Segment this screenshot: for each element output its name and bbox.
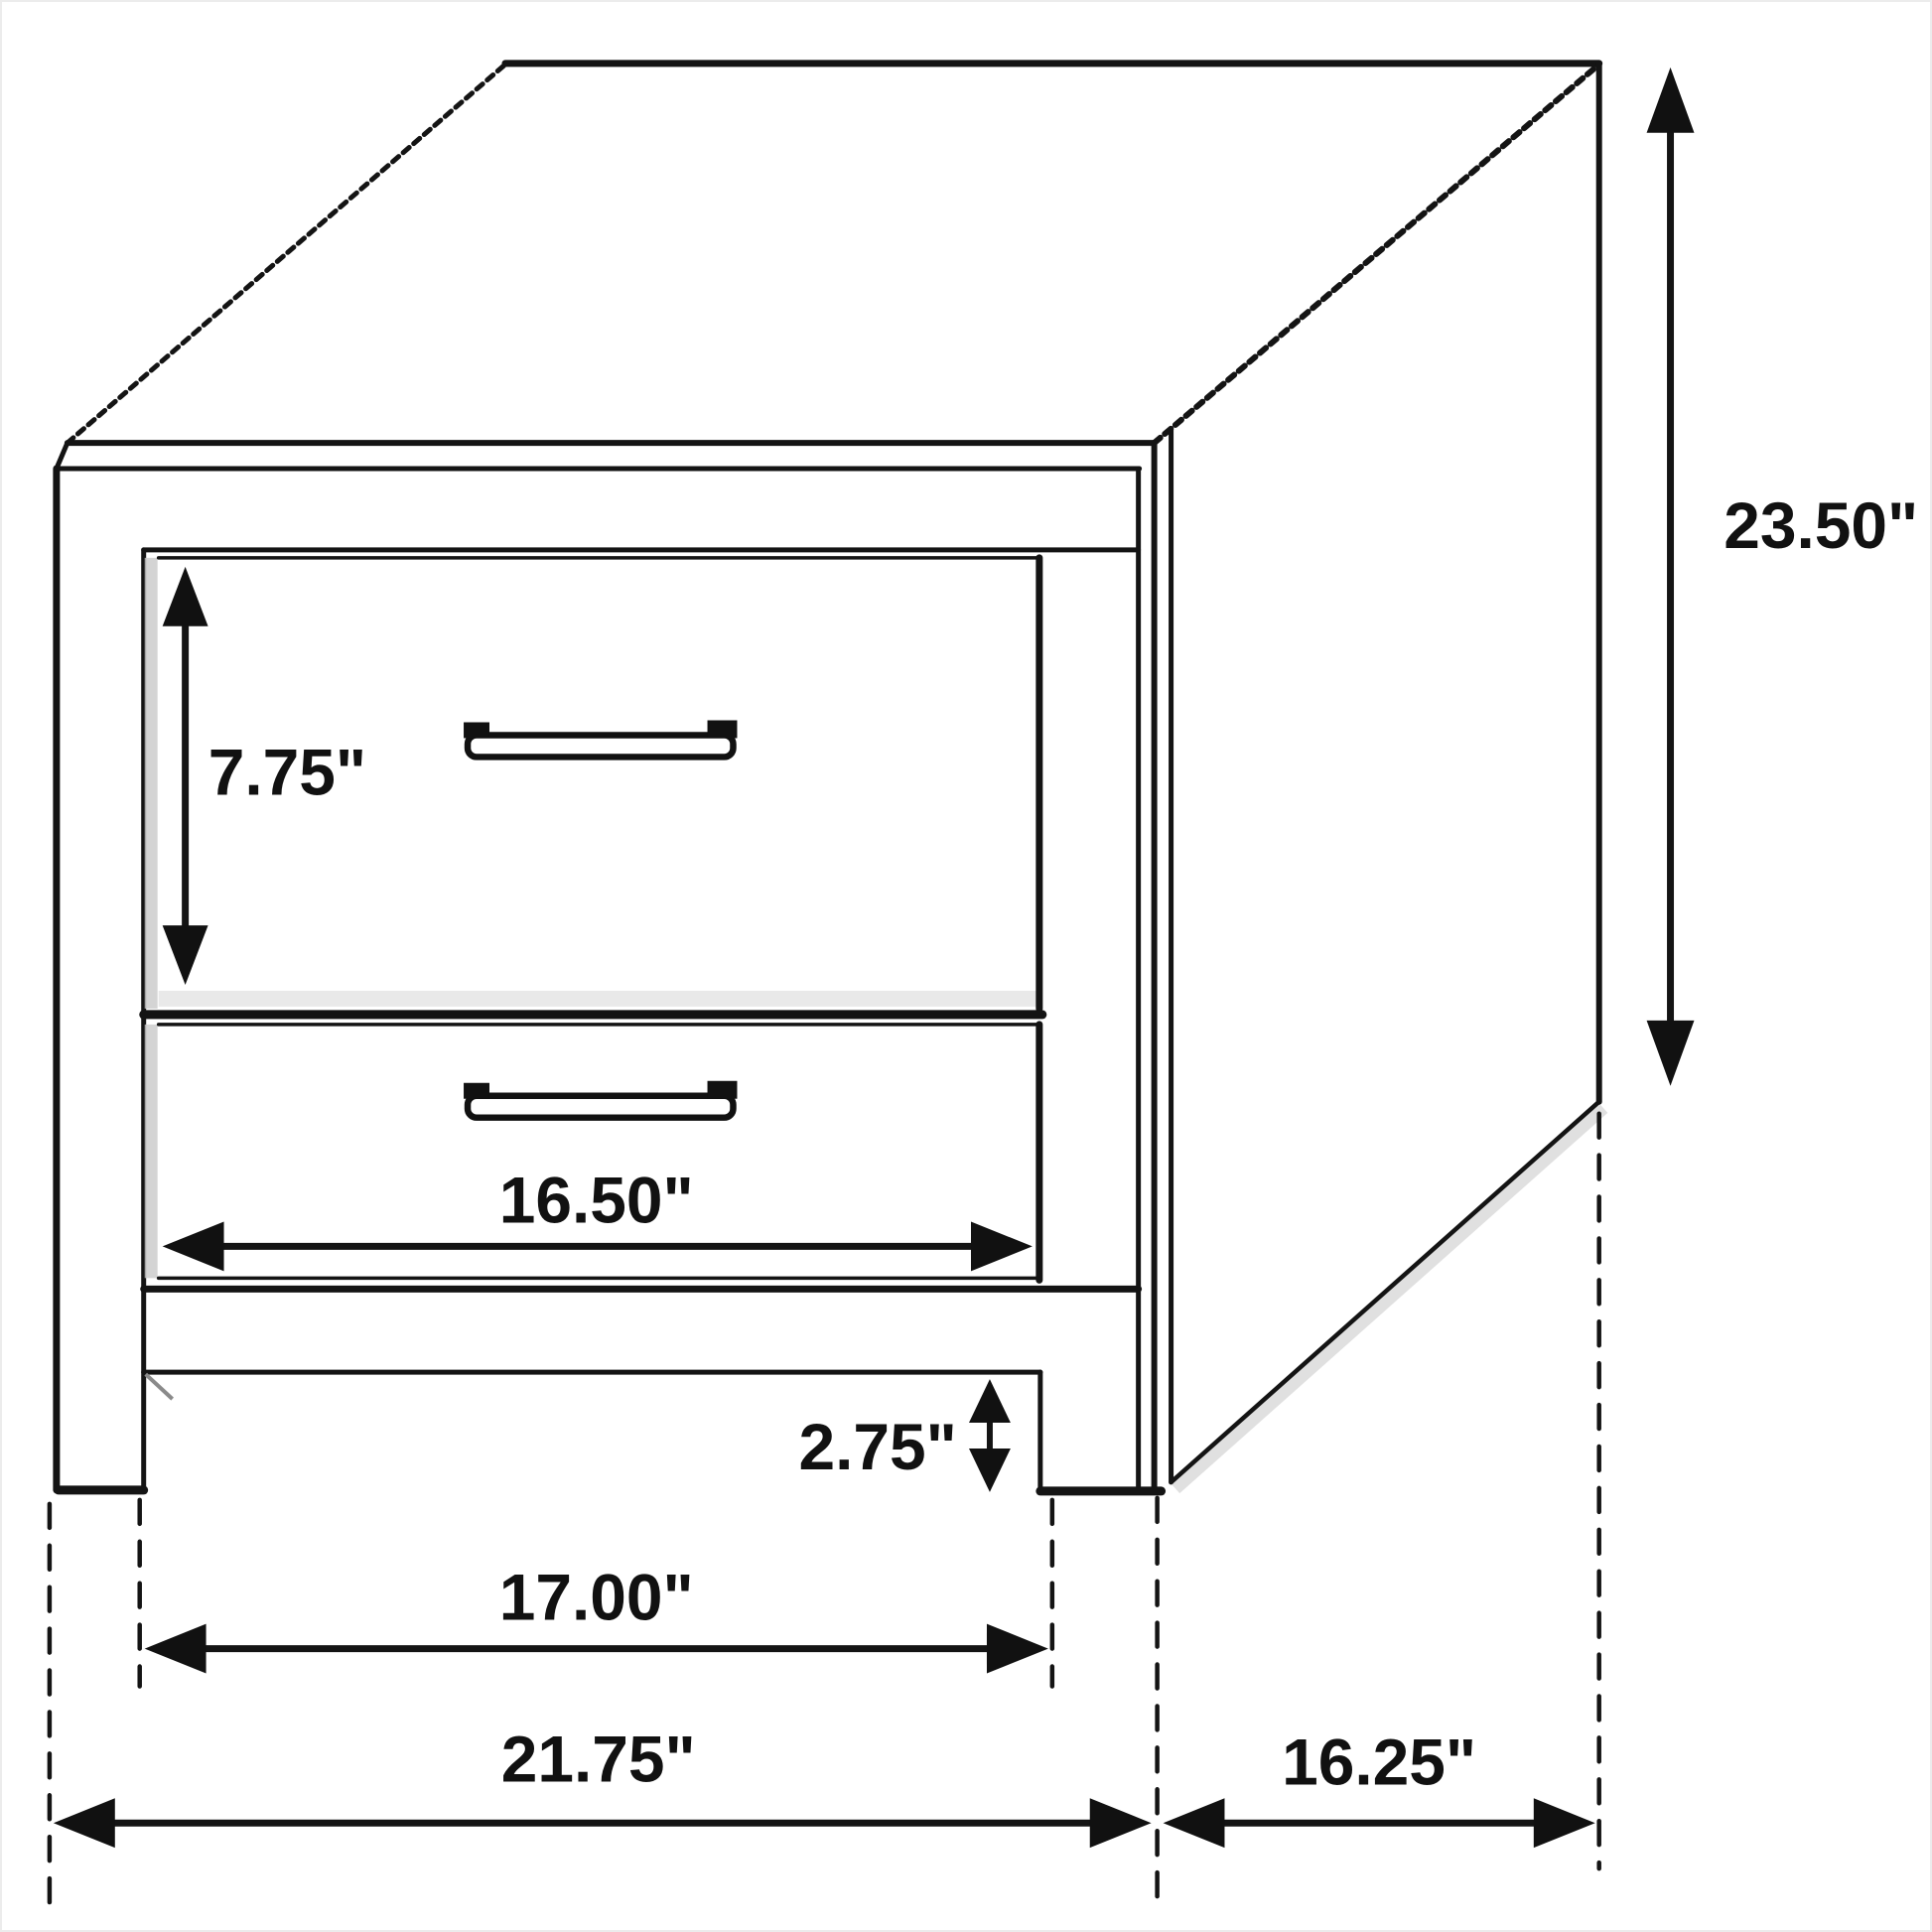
arrowhead-up-icon	[1647, 68, 1695, 133]
drawer-1-left-shadow	[145, 558, 158, 1009]
top-left-diagonal-edge	[68, 65, 505, 443]
dimension-overall-height: 23.50"	[1647, 68, 1919, 1086]
arrowhead-left-icon	[1164, 1798, 1225, 1848]
handle-post-left	[464, 1083, 489, 1099]
arrowhead-down-icon	[163, 925, 208, 985]
handle-post-left	[464, 723, 489, 739]
left-leg-corner-shadow	[146, 1374, 173, 1399]
side-bottom-shadow	[1175, 1108, 1603, 1488]
dimension-inner-width: 17.00"	[145, 1561, 1048, 1674]
dimension-label-depth: 16.25"	[1282, 1725, 1476, 1798]
handle-post-right	[708, 1081, 738, 1099]
arrowhead-right-icon	[971, 1221, 1033, 1271]
arrowhead-right-icon	[987, 1624, 1048, 1674]
top-left-bevel-line	[57, 443, 68, 469]
arrowhead-left-icon	[145, 1624, 207, 1674]
arrowhead-left-icon	[54, 1798, 115, 1848]
dimension-label-overall-width: 21.75"	[501, 1722, 696, 1795]
dimension-drawer-width: 16.50"	[163, 1163, 1033, 1271]
side-panel	[1172, 64, 1603, 1488]
dimension-label-base-clearance: 2.75"	[798, 1410, 956, 1483]
top-surface	[57, 64, 1599, 469]
dimension-label-drawer-height: 7.75"	[208, 735, 366, 808]
dimension-label-overall-height: 23.50"	[1724, 488, 1918, 562]
drawer-2-left-shadow	[145, 1025, 158, 1278]
drawer-1-handle-icon	[464, 721, 737, 758]
dimension-depth: 16.25"	[1164, 1725, 1595, 1848]
drawer-1-bottom-shadow	[159, 991, 1038, 1007]
arrowhead-up-icon	[969, 1379, 1011, 1423]
arrowhead-down-icon	[969, 1449, 1011, 1492]
side-bottom-edge-line	[1172, 1102, 1599, 1482]
nightstand-diagram-svg: 7.75" 23.50" 16.50" 2.75" 17.00"	[2, 2, 1930, 1930]
top-right-diagonal-edge	[1155, 65, 1599, 443]
front-face	[57, 443, 1162, 1491]
drawer-2	[145, 1025, 1039, 1280]
dimension-label-drawer-width: 16.50"	[499, 1163, 694, 1236]
drawer-2-handle-icon	[464, 1081, 737, 1118]
handle-bar	[468, 1096, 733, 1118]
dimension-overall-width: 21.75"	[54, 1722, 1152, 1848]
dimension-diagram: 7.75" 23.50" 16.50" 2.75" 17.00"	[0, 0, 1932, 1932]
handle-post-right	[708, 721, 738, 739]
arrowhead-down-icon	[1647, 1021, 1695, 1086]
arrowhead-left-icon	[163, 1221, 224, 1271]
handle-bar	[468, 735, 733, 757]
arrowhead-up-icon	[163, 567, 208, 626]
dimension-drawer-height: 7.75"	[163, 567, 366, 985]
dimension-label-inner-width: 17.00"	[499, 1561, 694, 1634]
arrowhead-right-icon	[1534, 1798, 1595, 1848]
dimension-base-clearance: 2.75"	[798, 1379, 1010, 1492]
arrowhead-right-icon	[1090, 1798, 1152, 1848]
